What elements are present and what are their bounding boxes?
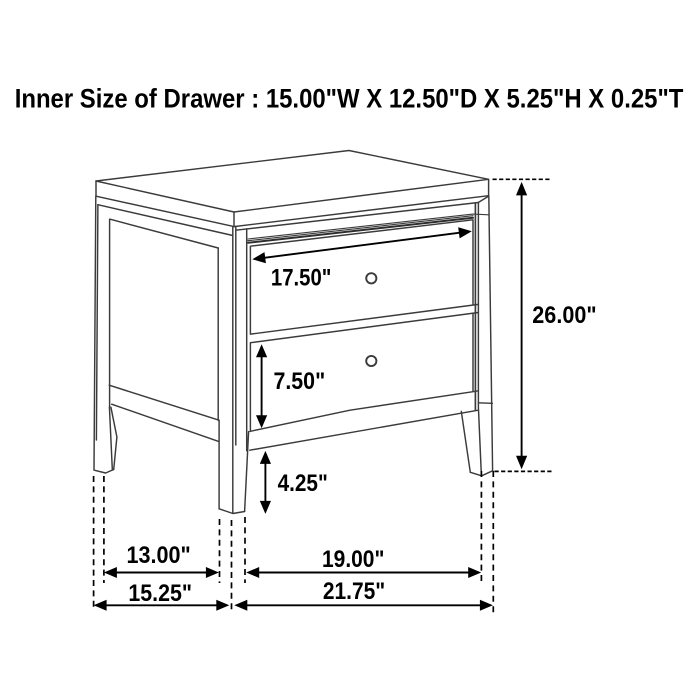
svg-text:21.75": 21.75": [323, 578, 385, 605]
svg-text:26.00": 26.00": [532, 302, 596, 329]
svg-text:7.50": 7.50": [274, 368, 326, 395]
svg-text:19.00": 19.00": [322, 546, 384, 573]
svg-text:4.25": 4.25": [278, 470, 328, 497]
svg-text:15.25": 15.25": [128, 580, 192, 607]
svg-text:Inner Size of Drawer : 15.00"W: Inner Size of Drawer : 15.00"W X 12.50"D…: [15, 83, 684, 113]
svg-text:17.50": 17.50": [271, 264, 332, 291]
svg-text:13.00": 13.00": [127, 542, 191, 569]
